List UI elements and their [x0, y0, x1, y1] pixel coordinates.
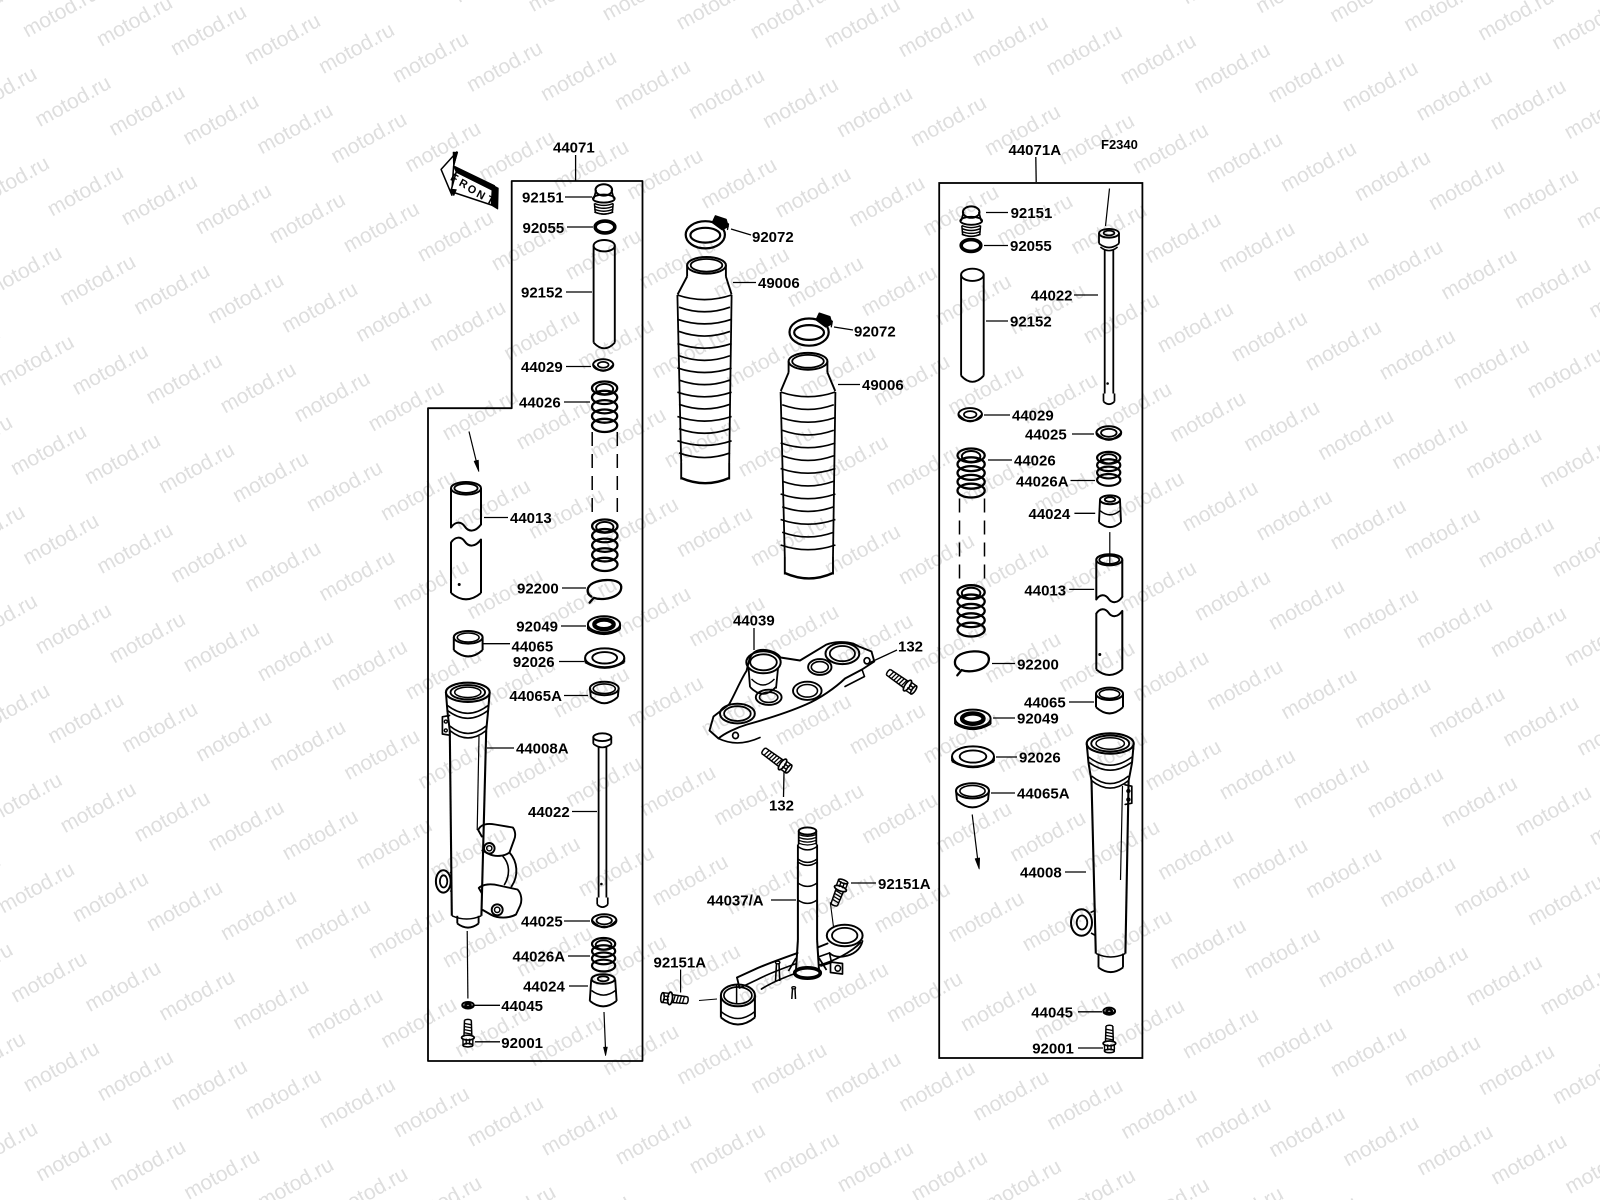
svg-text:92152: 92152 [521, 284, 563, 301]
svg-text:92049: 92049 [516, 618, 558, 635]
svg-text:44037/A: 44037/A [707, 892, 764, 909]
svg-text:44026: 44026 [519, 394, 561, 411]
svg-text:92001: 92001 [1032, 1040, 1074, 1057]
svg-text:44026: 44026 [1014, 452, 1056, 469]
svg-text:44024: 44024 [523, 978, 565, 995]
svg-text:44065: 44065 [512, 638, 554, 655]
svg-text:92200: 92200 [517, 580, 559, 597]
svg-text:92151A: 92151A [654, 954, 707, 971]
svg-text:92055: 92055 [1010, 238, 1052, 255]
svg-text:92055: 92055 [523, 220, 565, 237]
svg-text:92026: 92026 [513, 654, 555, 671]
svg-text:92072: 92072 [854, 323, 896, 340]
svg-text:44008A: 44008A [516, 740, 569, 757]
svg-text:44045: 44045 [1031, 1004, 1073, 1021]
svg-text:132: 132 [898, 638, 923, 655]
svg-text:92026: 92026 [1019, 749, 1061, 766]
svg-text:92072: 92072 [752, 229, 794, 246]
svg-text:49006: 49006 [862, 377, 904, 394]
svg-text:44039: 44039 [733, 612, 775, 629]
svg-text:44013: 44013 [510, 510, 552, 527]
svg-text:44026A: 44026A [1016, 473, 1069, 490]
svg-text:44022: 44022 [1031, 287, 1073, 304]
svg-text:132: 132 [769, 797, 794, 814]
svg-text:92151A: 92151A [878, 876, 931, 893]
svg-text:44029: 44029 [1012, 407, 1054, 424]
svg-text:44022: 44022 [528, 804, 570, 821]
svg-text:44024: 44024 [1029, 506, 1071, 523]
svg-text:44025: 44025 [1025, 426, 1067, 443]
svg-text:44008: 44008 [1020, 864, 1062, 881]
svg-text:44071A: 44071A [1009, 142, 1062, 159]
svg-text:44026A: 44026A [513, 948, 566, 965]
svg-text:92049: 92049 [1017, 710, 1059, 727]
svg-text:44045: 44045 [501, 998, 543, 1015]
svg-text:44065: 44065 [1024, 694, 1066, 711]
svg-text:92152: 92152 [1010, 313, 1052, 330]
svg-text:44065A: 44065A [1017, 785, 1070, 802]
svg-text:44071: 44071 [553, 139, 595, 156]
svg-text:92151: 92151 [1011, 205, 1053, 222]
svg-text:92151: 92151 [522, 189, 564, 206]
svg-text:44029: 44029 [521, 359, 563, 376]
svg-text:F2340: F2340 [1101, 137, 1138, 152]
svg-text:44025: 44025 [521, 913, 563, 930]
svg-text:49006: 49006 [758, 275, 800, 292]
svg-text:44013: 44013 [1024, 582, 1066, 599]
svg-text:92200: 92200 [1017, 656, 1059, 673]
svg-text:44065A: 44065A [509, 688, 562, 705]
svg-text:92001: 92001 [501, 1035, 543, 1052]
